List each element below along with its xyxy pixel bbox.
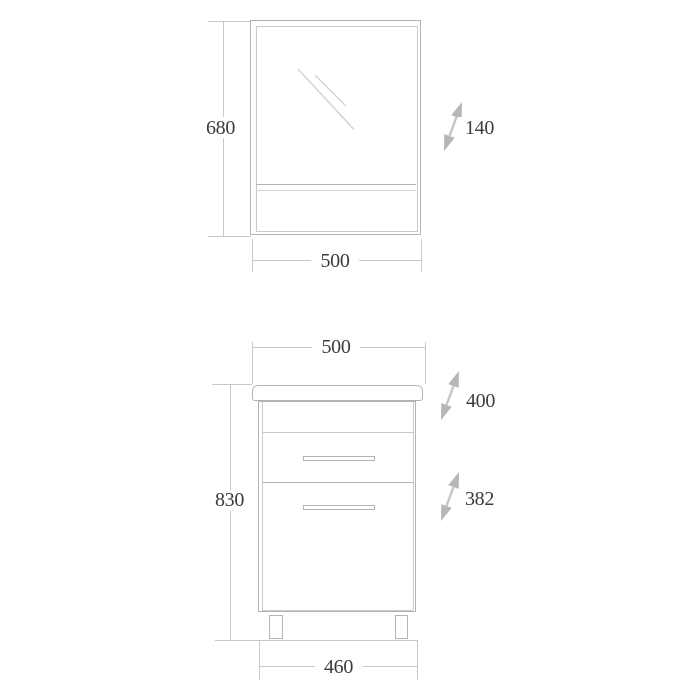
cabinet-height-label: 830 [208, 490, 251, 511]
cabinet-height-tick-top [212, 384, 252, 385]
cabinet-top-width-label: 500 [312, 337, 360, 357]
cabinet-worktop [252, 385, 423, 401]
mirror-reflection-lines-icon [280, 60, 370, 140]
mirror-shelf-line-top [256, 184, 416, 186]
cabinet-door-handle [303, 505, 375, 511]
cabinet-drawer-handle [303, 456, 375, 462]
mirror-width-ext-left [252, 239, 253, 272]
cabinet-height-dimension-line [230, 385, 231, 641]
mirror-shelf-line-bottom [256, 190, 416, 191]
cabinet-base-width-label: 460 [315, 657, 363, 678]
cabinet-leg-right [395, 615, 409, 639]
technical-drawing-canvas: 680 500 140 500 830 [0, 0, 700, 700]
cabinet-leg-left [269, 615, 283, 639]
cabinet-ground-line [215, 640, 418, 641]
mirror-width-label: 500 [311, 250, 359, 271]
mirror-width-ext-right [421, 239, 422, 272]
cabinet-base-width-ext-right [417, 641, 418, 680]
mirror-height-tick-top [208, 21, 251, 22]
cabinet-drawer-bottom-line [263, 482, 413, 484]
cabinet-top-width-ext-left [252, 342, 253, 384]
cabinet-drawer-top-line [263, 432, 413, 433]
cabinet-base-width-ext-left [259, 641, 260, 680]
mirror-height-tick-bottom [208, 236, 251, 237]
cabinet-body-depth-label: 382 [458, 489, 501, 510]
cabinet-worktop-depth-label: 400 [459, 390, 502, 411]
cabinet-body-inner-left [262, 402, 263, 610]
mirror-height-label: 680 [199, 117, 242, 138]
cabinet-body-inner-bottom [262, 610, 413, 611]
cabinet-top-width-ext-right [425, 342, 426, 384]
cabinet-body-inner-right [413, 402, 414, 610]
mirror-depth-label: 140 [458, 117, 501, 138]
